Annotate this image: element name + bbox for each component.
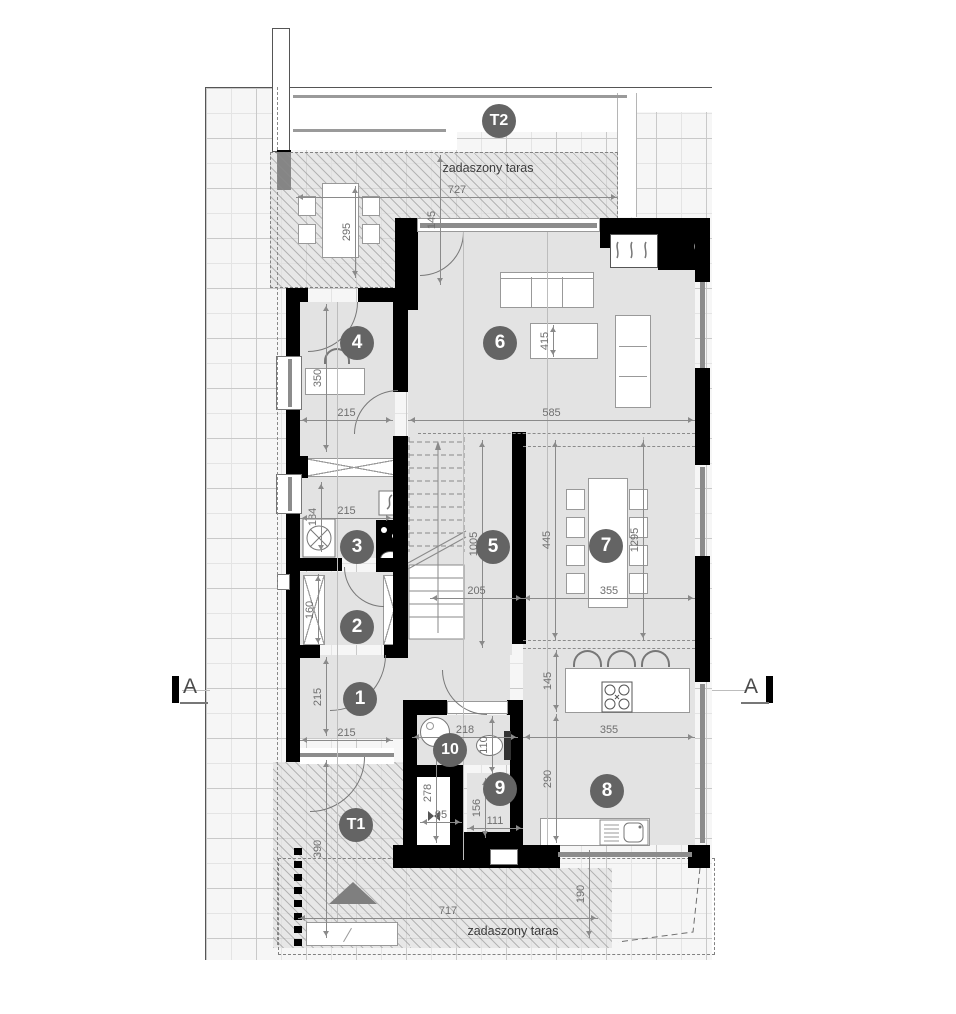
wall-hall <box>512 432 526 644</box>
window-right-living <box>700 282 705 368</box>
wall <box>463 832 513 845</box>
dimension-line <box>300 420 393 421</box>
dimension-line <box>298 918 598 919</box>
dimension-line <box>326 657 327 736</box>
wall-exterior-right <box>695 556 710 682</box>
dimension-line <box>355 186 356 278</box>
window-left-office <box>288 359 292 407</box>
room-marker-7: 7 <box>589 529 623 563</box>
terrace-step-outline <box>610 860 710 950</box>
wall-pier <box>395 218 418 310</box>
section-marker-underline <box>180 702 208 704</box>
dimension-label: 278 <box>422 783 434 801</box>
dimension-label: 205 <box>467 585 485 597</box>
wall-exterior-right <box>695 368 710 465</box>
terrace-table <box>322 183 359 258</box>
room-marker-T2: T2 <box>482 104 516 138</box>
bench-mark <box>343 928 352 942</box>
window-box-bottom <box>490 849 518 865</box>
wall <box>286 288 308 302</box>
roof-edge-line <box>293 129 446 132</box>
wall <box>450 765 464 847</box>
section-marker-bar-left <box>172 676 179 703</box>
dimension-label: 111 <box>487 815 504 827</box>
window-right-dining <box>700 467 705 556</box>
room-marker-1: 1 <box>343 682 377 716</box>
dimension-label: 215 <box>337 505 355 517</box>
dimension-line <box>589 850 590 938</box>
dimension-line <box>321 482 322 552</box>
dining-chair <box>566 517 585 538</box>
sofa-right <box>615 315 651 408</box>
wardrobe <box>306 458 402 477</box>
dimension-label: 184 <box>307 508 319 526</box>
room-marker-8: 8 <box>590 774 624 808</box>
chimney <box>272 28 290 152</box>
roof-edge-strip <box>617 93 637 217</box>
section-marker-right: A <box>744 675 758 699</box>
room-marker-3: 3 <box>340 530 374 564</box>
wc-sink-tap <box>426 722 434 730</box>
dimension-line <box>318 574 319 645</box>
wall <box>384 645 408 658</box>
dimension-line <box>523 598 695 599</box>
room-marker-9: 9 <box>483 772 517 806</box>
wall <box>286 645 320 658</box>
sofa-seam <box>562 277 563 307</box>
window-right-kitchen <box>700 684 705 843</box>
room-marker-2: 2 <box>340 610 374 644</box>
room-marker-10: 10 <box>433 733 467 767</box>
ceiling-break-line <box>523 640 695 641</box>
dining-chair <box>566 489 585 510</box>
dimension-line <box>420 822 462 823</box>
dimension-label: 355 <box>600 724 618 736</box>
wall <box>510 700 523 845</box>
toilet-cistern <box>504 731 511 760</box>
fence-dots <box>294 848 302 948</box>
floor-plan: A A zadaszony taras zadaszony taras 7271… <box>0 0 956 1014</box>
fireplace-flames-icon <box>613 240 657 262</box>
hob-dot <box>381 527 387 533</box>
stove-icon <box>601 681 633 713</box>
window-top-living <box>420 223 597 228</box>
vent-box <box>277 574 290 590</box>
ceiling-break-line <box>418 433 695 434</box>
wall-interior <box>393 436 408 655</box>
ceiling-break-line <box>523 446 695 447</box>
axis-line <box>463 232 464 860</box>
north-arrow-icon <box>329 882 377 904</box>
section-marker-underline <box>741 702 769 704</box>
dimension-line <box>492 716 493 774</box>
room-marker-6: 6 <box>483 326 517 360</box>
dimension-label: 110 <box>478 736 490 754</box>
section-line <box>712 690 747 691</box>
dimension-line <box>300 740 393 741</box>
bench <box>306 922 398 946</box>
dimension-label: 160 <box>304 600 316 618</box>
dining-chair <box>629 489 648 510</box>
wall <box>358 288 395 302</box>
dimension-label: 218 <box>456 724 474 736</box>
section-marker-bar-right <box>766 676 773 703</box>
window-bottom-kitchen <box>558 852 692 857</box>
kitchen-sink-icon <box>599 819 649 846</box>
dimension-line <box>326 760 327 938</box>
dimension-label: 445 <box>541 531 553 549</box>
dimension-line <box>643 440 644 640</box>
roof-overhang-band <box>627 88 712 112</box>
roof-edge-line <box>293 95 627 98</box>
wall-exterior-right <box>695 218 710 282</box>
dimension-line <box>296 197 618 198</box>
ceiling-break-line <box>523 648 695 649</box>
terrace-bottom-label: zadaszony taras <box>467 924 558 938</box>
room-marker-T1: T1 <box>339 808 373 842</box>
sofa-seam <box>619 376 647 377</box>
wall <box>403 700 447 715</box>
dimension-line <box>556 714 557 843</box>
terrace-chair <box>298 224 316 244</box>
dimension-label: 350 <box>312 369 324 387</box>
wall-exterior-bottom <box>520 845 560 868</box>
section-marker-left: A <box>183 675 197 699</box>
dimension-label: 355 <box>600 585 618 597</box>
room-marker-4: 4 <box>340 326 374 360</box>
staircase <box>408 437 468 642</box>
dimension-line <box>430 598 523 599</box>
dimension-line <box>556 650 557 712</box>
dimension-line <box>467 828 523 829</box>
dimension-line <box>555 440 556 640</box>
dimension-line <box>523 737 695 738</box>
dimension-line <box>412 737 518 738</box>
dimension-label: 145 <box>426 211 438 229</box>
dimension-label: 215 <box>312 687 324 705</box>
dimension-label: 390 <box>312 840 324 858</box>
dimension-label: 415 <box>539 332 551 350</box>
dimension-line <box>553 325 554 357</box>
window-left-utility <box>288 477 292 511</box>
dimension-label: 190 <box>575 885 587 903</box>
terrace-chair <box>362 224 380 244</box>
room-marker-5: 5 <box>476 530 510 564</box>
terrace-chair <box>362 196 380 216</box>
dimension-label: 717 <box>439 905 457 917</box>
dining-chair <box>629 573 648 594</box>
dimension-line <box>440 155 441 285</box>
dimension-label: 156 <box>471 799 483 817</box>
wall-interior <box>393 302 408 392</box>
terrace-top-label: zadaszony taras <box>442 161 533 175</box>
dimension-label: 727 <box>448 184 466 196</box>
dining-chair <box>566 545 585 566</box>
dimension-label: 145 <box>542 672 554 690</box>
dimension-label: 295 <box>341 223 353 241</box>
dimension-label: 585 <box>542 407 560 419</box>
property-line <box>277 87 278 945</box>
dimension-line <box>408 420 695 421</box>
dimension-label: 290 <box>542 769 554 787</box>
dimension-line <box>326 304 327 452</box>
wall-fireplace-side <box>658 232 700 270</box>
dining-chair <box>566 573 585 594</box>
sofa-seam <box>619 346 647 347</box>
axis-line <box>337 302 338 940</box>
dimension-label: 215 <box>337 407 355 419</box>
dimension-label: 95 <box>435 809 447 821</box>
dimension-line <box>300 518 393 519</box>
sofa-seam <box>531 277 532 307</box>
wall <box>286 558 342 571</box>
dimension-label: 1295 <box>629 528 641 552</box>
dimension-label: 215 <box>337 727 355 739</box>
